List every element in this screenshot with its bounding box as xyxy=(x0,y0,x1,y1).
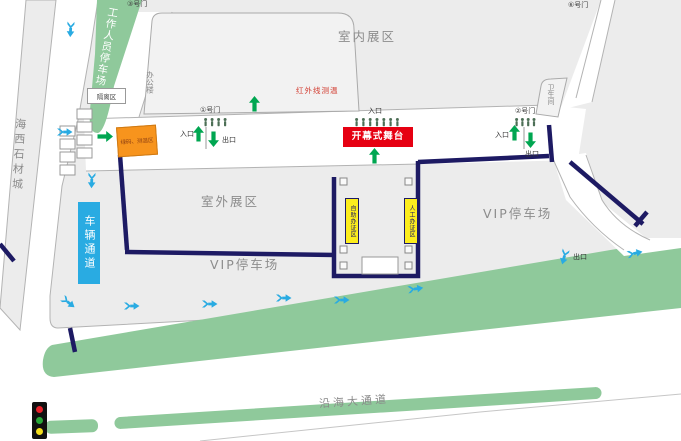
restroom-label: 卫生间 xyxy=(547,84,554,105)
vip-parking-label-right: VIP停车场 xyxy=(483,208,552,221)
self-service-badge-booth: 自助办证区 xyxy=(345,198,359,244)
blue-arrow-down-icon xyxy=(66,21,74,37)
gate6-label: ⑥号门 xyxy=(568,2,588,9)
exit-label-southeast: 出口 xyxy=(573,254,587,261)
coastal-green-strip-short xyxy=(45,419,98,434)
exit-label-right: 出口 xyxy=(525,151,539,158)
opening-stage: 开幕式舞台 xyxy=(343,127,413,147)
venue-map: 海西石材城 工作人员停车场 隔离区 ③号门 ⑥号门 ①号门 ②号门 办公楼 卫生… xyxy=(0,0,681,441)
manual-badge-booth: 人工办证区 xyxy=(404,198,418,244)
vehicle-channel: 车辆通道 xyxy=(78,202,100,284)
gate2-label: ②号门 xyxy=(515,108,535,115)
exit-label-left: 出口 xyxy=(222,137,236,144)
booth-building xyxy=(362,257,398,274)
entrance-label-right: 入口 xyxy=(495,132,509,139)
gate1-label: ①号门 xyxy=(200,107,220,114)
office-building-label: 办公楼 xyxy=(146,71,154,94)
isolation-zone-label: 隔离区 xyxy=(87,88,126,104)
entrance-label-left: 入口 xyxy=(180,131,194,138)
indoor-exhibition-label: 室内展区 xyxy=(338,31,396,44)
stone-city-block xyxy=(0,0,56,330)
outdoor-exhibition-label: 室外展区 xyxy=(201,196,259,209)
infrared-check-label: 红外线测温 xyxy=(296,87,339,95)
entrance-label-stage: 入口 xyxy=(368,108,382,115)
gate3-label: ③号门 xyxy=(127,1,147,8)
green-code-checkpoint: 绿码、测温区 xyxy=(116,125,158,158)
traffic-light-icon xyxy=(32,402,47,439)
vip-parking-label-left: VIP停车场 xyxy=(210,259,279,272)
office-building-shape xyxy=(144,13,359,114)
